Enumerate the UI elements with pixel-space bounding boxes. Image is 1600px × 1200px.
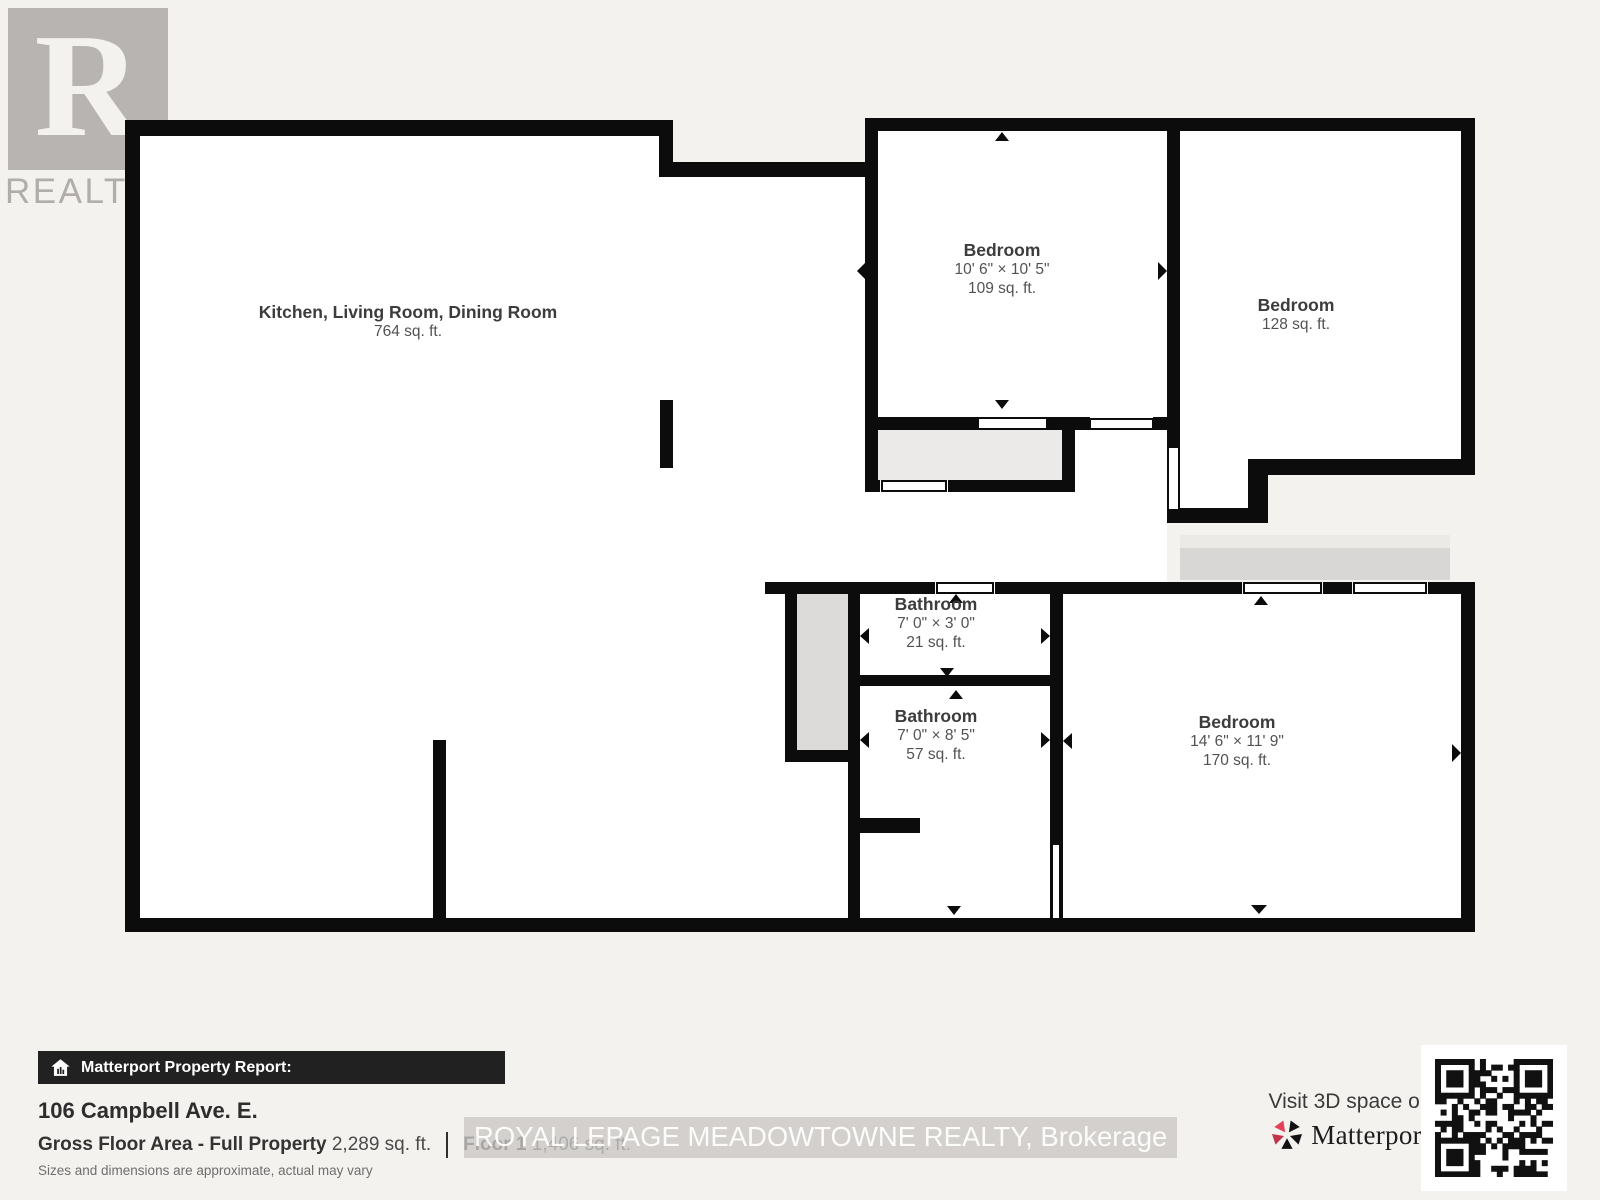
room-area: 57 sq. ft.: [895, 745, 978, 764]
room-name: Bedroom: [1190, 713, 1284, 732]
room-dimensions: 7' 0" × 3' 0": [895, 614, 978, 633]
report-bar-title: Matterport Property Report:: [81, 1059, 292, 1077]
room-interiors: [125, 130, 1461, 918]
room-dimensions: 10' 6" × 10' 5": [955, 260, 1050, 279]
house-icon: [50, 1057, 71, 1078]
brokerage-watermark: ROYAL LEPAGE MEADOWTOWNE REALTY, Brokera…: [464, 1117, 1177, 1158]
room-area: 21 sq. ft.: [895, 633, 978, 652]
divider: [446, 1132, 448, 1158]
floor-plan-drawing: [0, 0, 1600, 1200]
matterport-wordmark: Matterport: [1311, 1120, 1429, 1151]
room-name: Bathroom: [895, 707, 978, 726]
room-label-bedroom-1: Bedroom 10' 6" × 10' 5" 109 sq. ft.: [955, 241, 1050, 298]
room-label-bedroom-3: Bedroom 14' 6" × 11' 9" 170 sq. ft.: [1190, 713, 1284, 770]
room-label-bathroom-1: Bathroom 7' 0" × 3' 0" 21 sq. ft.: [895, 595, 978, 652]
room-name: Bathroom: [895, 595, 978, 614]
room-name: Bedroom: [955, 241, 1050, 260]
gross-floor-area-label: Gross Floor Area - Full Property: [38, 1134, 327, 1156]
matterport-report-bar: Matterport Property Report:: [38, 1051, 505, 1084]
gross-floor-area-value: 2,289 sq. ft.: [332, 1134, 431, 1156]
matterport-pinwheel-icon: [1270, 1118, 1304, 1152]
room-label-bedroom-2: Bedroom 128 sq. ft.: [1258, 296, 1335, 334]
qr-code-pattern: [1435, 1059, 1553, 1177]
room-area: 764 sq. ft.: [259, 322, 557, 341]
room-label-bathroom-2: Bathroom 7' 0" × 8' 5" 57 sq. ft.: [895, 707, 978, 764]
room-area: 109 sq. ft.: [955, 279, 1050, 298]
disclaimer-text: Sizes and dimensions are approximate, ac…: [38, 1163, 373, 1178]
room-dimensions: 14' 6" × 11' 9": [1190, 732, 1284, 751]
property-address: 106 Campbell Ave. E.: [38, 1098, 258, 1124]
room-area: 170 sq. ft.: [1190, 751, 1284, 770]
room-area: 128 sq. ft.: [1258, 315, 1335, 334]
qr-code: [1421, 1045, 1567, 1191]
room-name: Kitchen, Living Room, Dining Room: [259, 303, 557, 322]
room-label-kitchen-living-dining: Kitchen, Living Room, Dining Room 764 sq…: [259, 303, 557, 341]
floor-plan-page: { "branding": { "realtor_logo_letter": "…: [0, 0, 1600, 1200]
room-dimensions: 7' 0" × 8' 5": [895, 726, 978, 745]
room-name: Bedroom: [1258, 296, 1335, 315]
